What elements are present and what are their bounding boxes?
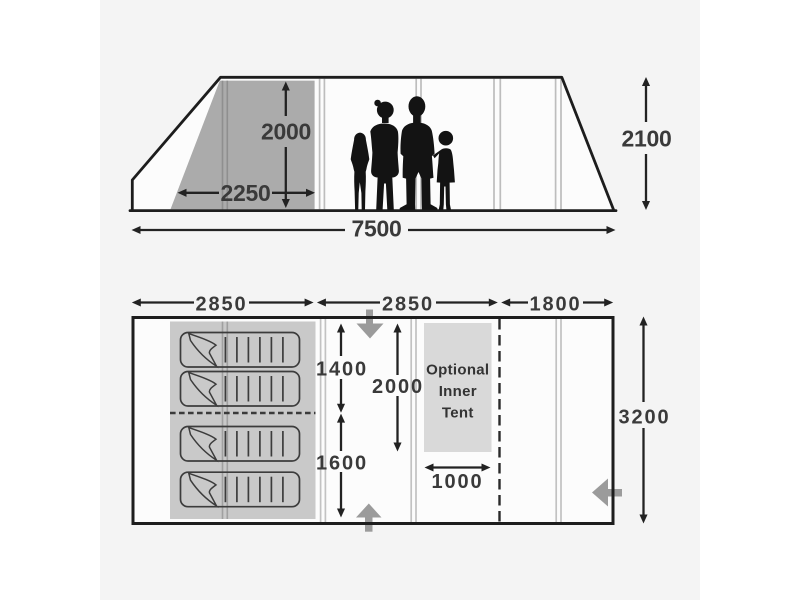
svg-text:Inner: Inner	[439, 383, 477, 400]
svg-text:2250: 2250	[221, 180, 271, 206]
svg-text:Optional: Optional	[426, 361, 489, 378]
svg-text:2100: 2100	[622, 126, 672, 152]
svg-text:2850: 2850	[195, 294, 247, 316]
svg-text:1800: 1800	[529, 294, 581, 316]
svg-text:3200: 3200	[618, 407, 670, 429]
svg-text:2850: 2850	[382, 294, 434, 316]
svg-text:2000: 2000	[372, 376, 424, 398]
svg-text:1600: 1600	[316, 453, 368, 475]
svg-text:2000: 2000	[261, 119, 311, 145]
svg-text:1400: 1400	[316, 359, 368, 381]
svg-text:7500: 7500	[352, 216, 402, 242]
svg-text:Tent: Tent	[442, 404, 474, 421]
svg-text:1000: 1000	[431, 471, 483, 493]
